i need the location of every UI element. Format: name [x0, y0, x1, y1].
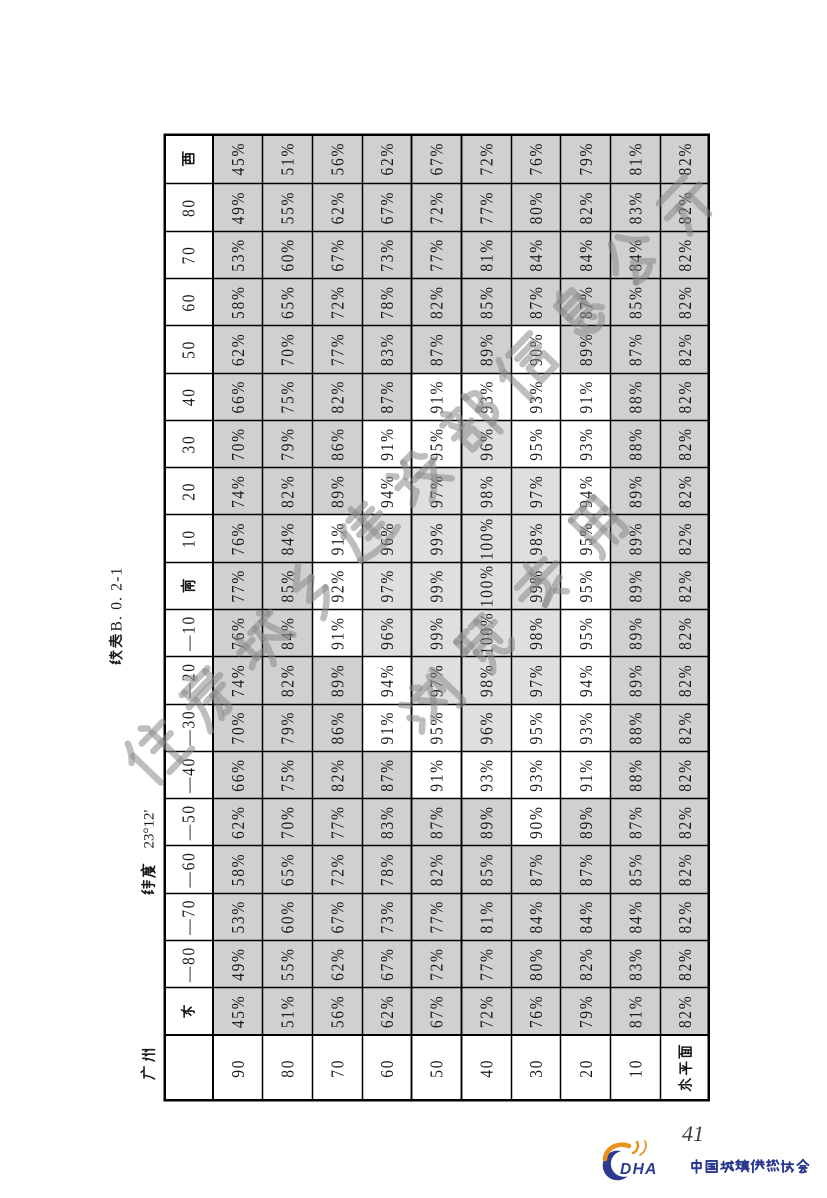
svg-text:93%: 93% — [576, 427, 596, 460]
svg-text:89%: 89% — [625, 569, 645, 602]
svg-text:98%: 98% — [526, 616, 546, 649]
svg-text:73%: 73% — [377, 238, 397, 271]
svg-text:62%: 62% — [327, 947, 347, 980]
svg-text:76%: 76% — [526, 142, 546, 175]
svg-text:98%: 98% — [476, 475, 496, 508]
svg-text:93%: 93% — [576, 711, 596, 744]
svg-text:91%: 91% — [377, 711, 397, 744]
svg-text:91%: 91% — [576, 380, 596, 413]
svg-text:20: 20 — [576, 1059, 596, 1078]
svg-text:89%: 89% — [576, 805, 596, 838]
svg-text:60: 60 — [377, 1059, 397, 1078]
svg-text:62%: 62% — [327, 191, 347, 224]
svg-text:80: 80 — [178, 198, 198, 217]
svg-text:55%: 55% — [278, 191, 298, 224]
svg-text:85%: 85% — [625, 285, 645, 318]
svg-text:51%: 51% — [278, 995, 298, 1028]
svg-text:88%: 88% — [625, 758, 645, 791]
svg-text:75%: 75% — [278, 758, 298, 791]
svg-text:67%: 67% — [377, 947, 397, 980]
svg-text:94%: 94% — [377, 664, 397, 697]
svg-text:80: 80 — [278, 1059, 298, 1078]
svg-text:70%: 70% — [278, 333, 298, 366]
svg-text:82%: 82% — [675, 664, 695, 697]
svg-text:82%: 82% — [675, 711, 695, 744]
svg-text:23°12': 23°12' — [142, 810, 158, 849]
svg-text:85%: 85% — [476, 853, 496, 886]
svg-text:82%: 82% — [675, 947, 695, 980]
svg-text:84%: 84% — [576, 238, 596, 271]
svg-text:97%: 97% — [377, 569, 397, 602]
svg-text:95%: 95% — [427, 427, 447, 460]
svg-text:80%: 80% — [526, 947, 546, 980]
svg-text:97%: 97% — [526, 475, 546, 508]
svg-text:82%: 82% — [327, 758, 347, 791]
svg-text:74%: 74% — [228, 475, 248, 508]
svg-text:81%: 81% — [476, 900, 496, 933]
svg-text:82%: 82% — [675, 380, 695, 413]
svg-text:10: 10 — [178, 529, 198, 548]
svg-text:82%: 82% — [427, 853, 447, 886]
svg-text:62%: 62% — [228, 805, 248, 838]
svg-text:72%: 72% — [476, 142, 496, 175]
svg-text:96%: 96% — [476, 711, 496, 744]
svg-text:58%: 58% — [228, 285, 248, 318]
svg-text:67%: 67% — [377, 191, 397, 224]
svg-text:77%: 77% — [476, 947, 496, 980]
svg-text:89%: 89% — [625, 616, 645, 649]
svg-text:72%: 72% — [427, 947, 447, 980]
svg-text:98%: 98% — [526, 522, 546, 555]
svg-text:90%: 90% — [526, 805, 546, 838]
svg-text:81%: 81% — [625, 995, 645, 1028]
svg-text:89%: 89% — [625, 664, 645, 697]
svg-text:94%: 94% — [576, 664, 596, 697]
svg-text:92%: 92% — [327, 569, 347, 602]
svg-text:—30: —30 — [178, 710, 198, 747]
svg-text:70: 70 — [327, 1059, 347, 1078]
svg-text:82%: 82% — [675, 853, 695, 886]
svg-text:76%: 76% — [526, 995, 546, 1028]
svg-text:62%: 62% — [228, 333, 248, 366]
svg-text:93%: 93% — [476, 758, 496, 791]
svg-text:86%: 86% — [327, 711, 347, 744]
svg-text:77%: 77% — [228, 569, 248, 602]
svg-text:87%: 87% — [526, 285, 546, 318]
svg-text:95%: 95% — [526, 711, 546, 744]
svg-text:20: 20 — [178, 482, 198, 501]
svg-text:—10: —10 — [178, 615, 198, 652]
svg-text:91%: 91% — [427, 380, 447, 413]
svg-text:82%: 82% — [675, 758, 695, 791]
svg-text:88%: 88% — [625, 427, 645, 460]
svg-text:89%: 89% — [476, 333, 496, 366]
svg-text:82%: 82% — [675, 142, 695, 175]
svg-text:82%: 82% — [675, 285, 695, 318]
svg-text:87%: 87% — [377, 758, 397, 791]
svg-text:73%: 73% — [377, 900, 397, 933]
svg-text:82%: 82% — [675, 995, 695, 1028]
svg-text:87%: 87% — [427, 805, 447, 838]
svg-text:B. 0. 2-1: B. 0. 2-1 — [109, 566, 126, 631]
svg-text:67%: 67% — [327, 238, 347, 271]
svg-text:87%: 87% — [576, 853, 596, 886]
svg-text:40: 40 — [476, 1059, 496, 1078]
svg-text:96%: 96% — [377, 616, 397, 649]
svg-text:70%: 70% — [228, 427, 248, 460]
svg-text:91%: 91% — [576, 758, 596, 791]
svg-text:82%: 82% — [576, 191, 596, 224]
svg-text:82%: 82% — [327, 380, 347, 413]
svg-text:72%: 72% — [476, 995, 496, 1028]
svg-text:78%: 78% — [377, 853, 397, 886]
svg-text:82%: 82% — [675, 475, 695, 508]
svg-text:—50: —50 — [178, 804, 198, 841]
svg-text:83%: 83% — [625, 191, 645, 224]
svg-text:89%: 89% — [625, 475, 645, 508]
svg-text:77%: 77% — [476, 191, 496, 224]
svg-text:80%: 80% — [526, 191, 546, 224]
svg-text:79%: 79% — [576, 142, 596, 175]
svg-text:66%: 66% — [228, 380, 248, 413]
svg-text:72%: 72% — [427, 191, 447, 224]
svg-text:82%: 82% — [675, 238, 695, 271]
svg-text:10: 10 — [625, 1059, 645, 1078]
svg-text:—80: —80 — [178, 946, 198, 983]
svg-text:DHA: DHA — [620, 1161, 658, 1178]
svg-text:85%: 85% — [625, 853, 645, 886]
svg-text:86%: 86% — [327, 427, 347, 460]
svg-text:—60: —60 — [178, 851, 198, 888]
svg-text:45%: 45% — [228, 142, 248, 175]
svg-text:70: 70 — [178, 245, 198, 264]
svg-text:67%: 67% — [427, 142, 447, 175]
svg-text:87%: 87% — [526, 853, 546, 886]
svg-text:53%: 53% — [228, 900, 248, 933]
svg-text:76%: 76% — [228, 522, 248, 555]
svg-text:78%: 78% — [377, 285, 397, 318]
svg-text:99%: 99% — [427, 569, 447, 602]
svg-text:51%: 51% — [278, 142, 298, 175]
svg-text:90: 90 — [228, 1059, 248, 1078]
svg-text:83%: 83% — [625, 947, 645, 980]
svg-text:70%: 70% — [278, 805, 298, 838]
svg-text:82%: 82% — [675, 569, 695, 602]
svg-text:60: 60 — [178, 293, 198, 312]
svg-text:99%: 99% — [427, 616, 447, 649]
svg-text:82%: 82% — [576, 947, 596, 980]
svg-text:87%: 87% — [377, 380, 397, 413]
svg-text:100%: 100% — [476, 564, 496, 607]
svg-text:70%: 70% — [228, 711, 248, 744]
svg-text:75%: 75% — [278, 380, 298, 413]
svg-text:30: 30 — [526, 1059, 546, 1078]
svg-text:—70: —70 — [178, 899, 198, 936]
svg-text:85%: 85% — [476, 285, 496, 318]
svg-text:82%: 82% — [675, 900, 695, 933]
svg-text:89%: 89% — [625, 522, 645, 555]
svg-text:72%: 72% — [327, 285, 347, 318]
svg-text:82%: 82% — [675, 805, 695, 838]
svg-text:95%: 95% — [526, 427, 546, 460]
svg-text:88%: 88% — [625, 380, 645, 413]
svg-text:77%: 77% — [427, 900, 447, 933]
svg-text:79%: 79% — [278, 711, 298, 744]
svg-text:84%: 84% — [576, 900, 596, 933]
svg-text:84%: 84% — [526, 900, 546, 933]
svg-text:91%: 91% — [327, 616, 347, 649]
svg-text:83%: 83% — [377, 805, 397, 838]
svg-text:100%: 100% — [476, 517, 496, 560]
svg-text:66%: 66% — [228, 758, 248, 791]
svg-text:77%: 77% — [327, 805, 347, 838]
svg-text:87%: 87% — [625, 805, 645, 838]
svg-text:72%: 72% — [327, 853, 347, 886]
svg-text:67%: 67% — [427, 995, 447, 1028]
svg-text:82%: 82% — [675, 427, 695, 460]
svg-text:74%: 74% — [228, 664, 248, 697]
svg-text:50: 50 — [178, 340, 198, 359]
svg-text:53%: 53% — [228, 238, 248, 271]
svg-text:82%: 82% — [675, 616, 695, 649]
svg-text:81%: 81% — [625, 142, 645, 175]
svg-text:87%: 87% — [427, 333, 447, 366]
svg-text:82%: 82% — [278, 475, 298, 508]
svg-text:67%: 67% — [327, 900, 347, 933]
svg-text:84%: 84% — [526, 238, 546, 271]
svg-text:82%: 82% — [675, 522, 695, 555]
svg-text:93%: 93% — [526, 758, 546, 791]
svg-text:97%: 97% — [526, 664, 546, 697]
svg-text:84%: 84% — [625, 900, 645, 933]
svg-text:88%: 88% — [625, 711, 645, 744]
svg-text:62%: 62% — [377, 995, 397, 1028]
svg-text:50: 50 — [427, 1059, 447, 1078]
svg-text:49%: 49% — [228, 947, 248, 980]
svg-text:99%: 99% — [427, 522, 447, 555]
svg-text:95%: 95% — [576, 616, 596, 649]
svg-text:95%: 95% — [576, 569, 596, 602]
svg-text:65%: 65% — [278, 285, 298, 318]
svg-text:60%: 60% — [278, 900, 298, 933]
svg-text:79%: 79% — [576, 995, 596, 1028]
svg-text:49%: 49% — [228, 191, 248, 224]
svg-text:81%: 81% — [476, 238, 496, 271]
svg-text:56%: 56% — [327, 142, 347, 175]
svg-text:89%: 89% — [476, 805, 496, 838]
svg-text:89%: 89% — [327, 664, 347, 697]
svg-text:65%: 65% — [278, 853, 298, 886]
svg-text:40: 40 — [178, 387, 198, 406]
svg-text:55%: 55% — [278, 947, 298, 980]
svg-text:77%: 77% — [327, 333, 347, 366]
svg-text:82%: 82% — [278, 664, 298, 697]
svg-text:87%: 87% — [625, 333, 645, 366]
svg-text:62%: 62% — [377, 142, 397, 175]
svg-text:84%: 84% — [278, 522, 298, 555]
svg-text:91%: 91% — [377, 427, 397, 460]
svg-text:79%: 79% — [278, 427, 298, 460]
svg-text:41: 41 — [682, 1121, 704, 1146]
svg-text:82%: 82% — [675, 333, 695, 366]
svg-text:91%: 91% — [427, 758, 447, 791]
svg-text:45%: 45% — [228, 995, 248, 1028]
svg-text:89%: 89% — [327, 475, 347, 508]
svg-text:83%: 83% — [377, 333, 397, 366]
svg-text:60%: 60% — [278, 238, 298, 271]
svg-text:30: 30 — [178, 435, 198, 454]
svg-text:82%: 82% — [427, 285, 447, 318]
svg-text:58%: 58% — [228, 853, 248, 886]
svg-text:77%: 77% — [427, 238, 447, 271]
svg-text:56%: 56% — [327, 995, 347, 1028]
